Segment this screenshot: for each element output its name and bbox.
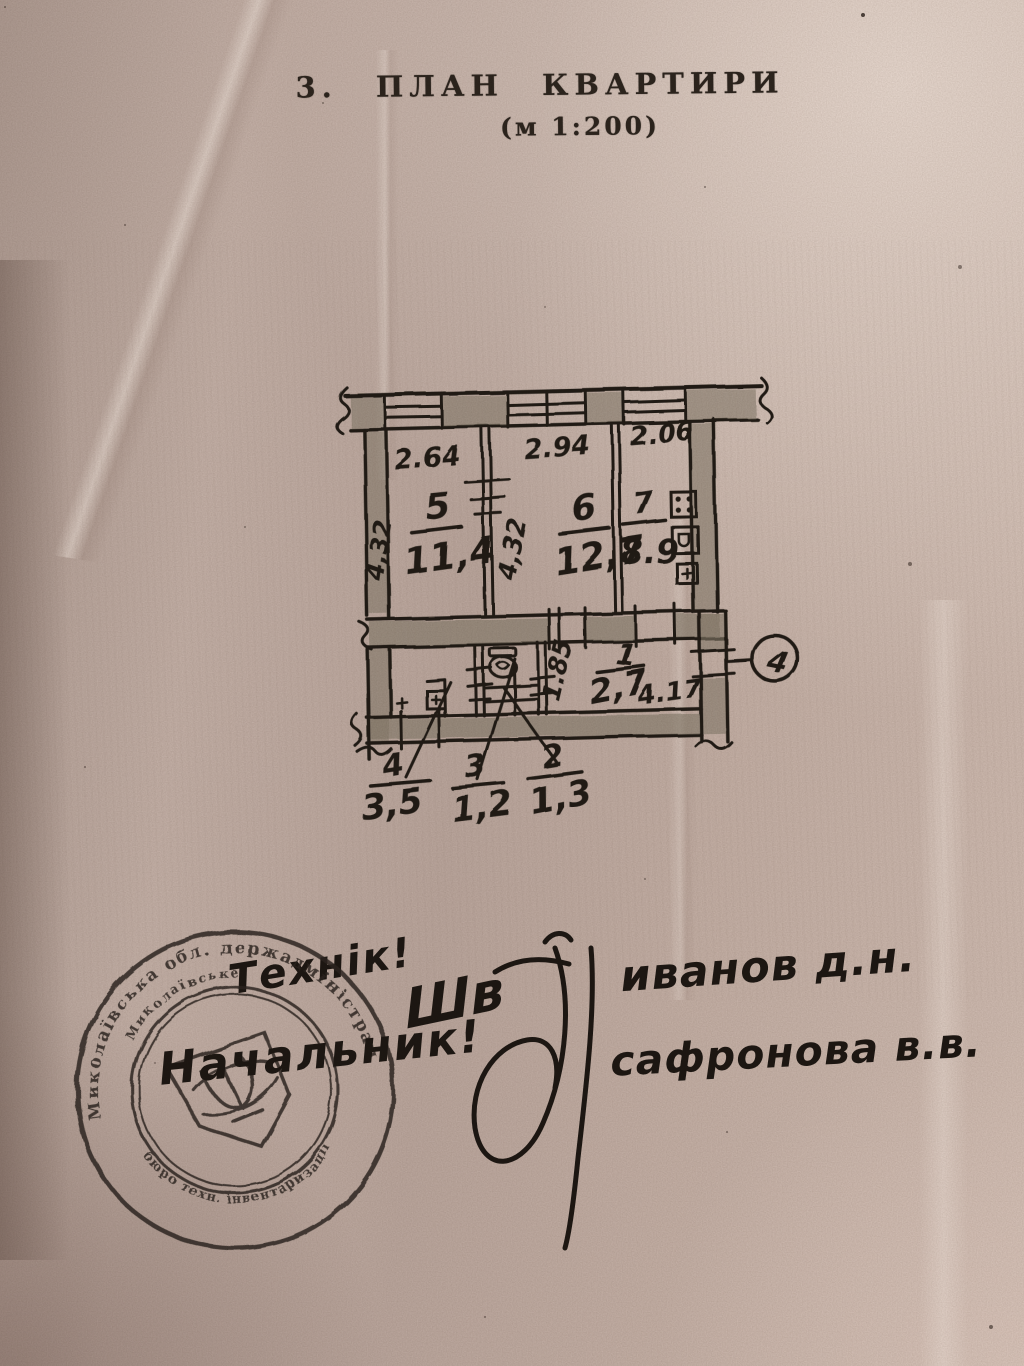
room6-number: 6 (570, 487, 600, 531)
room5-number: 5 (424, 486, 453, 529)
scale-note: (м 1:200) (100, 107, 1024, 146)
room3-area: 1,2 (449, 784, 515, 831)
dim-hall-width: 1.85 (536, 637, 578, 704)
dim-room5-width: 2.64 (393, 440, 462, 476)
partition-room6-room7 (612, 425, 622, 613)
room7-area: 8.9 (620, 531, 679, 571)
dim-room6-height: 4,32 (492, 516, 532, 583)
official-stamp: Миколаївська обл. держадміністрація Мико… (50, 912, 430, 1277)
signature-stroke (565, 948, 592, 1248)
handwritten-name-ivanov: иванов д.н. (619, 932, 918, 1003)
room2-area: 1,3 (527, 772, 596, 823)
room3-number: 3 (463, 748, 488, 786)
room4-area: 3,5 (359, 781, 425, 828)
room7-number: 7 (631, 485, 657, 523)
paper-crease (905, 600, 975, 1366)
dim-room7-width: 2.06 (628, 416, 695, 451)
paper-specks (4, 6, 6, 8)
floor-plan: 2.64 2.94 2.06 4,32 4,32 5 11,4 6 12,7 7… (337, 366, 807, 846)
signature-stroke (545, 933, 571, 942)
room2-number: 2 (539, 737, 566, 776)
window (384, 394, 442, 429)
window (507, 391, 586, 427)
signature-stroke (474, 948, 565, 1161)
wall-break-mark (352, 714, 362, 746)
dim-room6-width: 2.94 (523, 430, 592, 466)
handwritten-name-safronova: сафронова в.в. (609, 1018, 983, 1085)
room4-number: 4 (379, 746, 407, 785)
exterior-wall-left (352, 429, 392, 760)
photographed-document: 3. ПЛАН КВАРТИРИ (м 1:200) (0, 0, 1024, 1366)
page-title: 3. ПЛАН КВАРТИРИ (60, 63, 1020, 107)
plus-mark (397, 698, 407, 708)
exterior-wall-bottom (352, 705, 702, 750)
signature-flourish (395, 918, 630, 1268)
